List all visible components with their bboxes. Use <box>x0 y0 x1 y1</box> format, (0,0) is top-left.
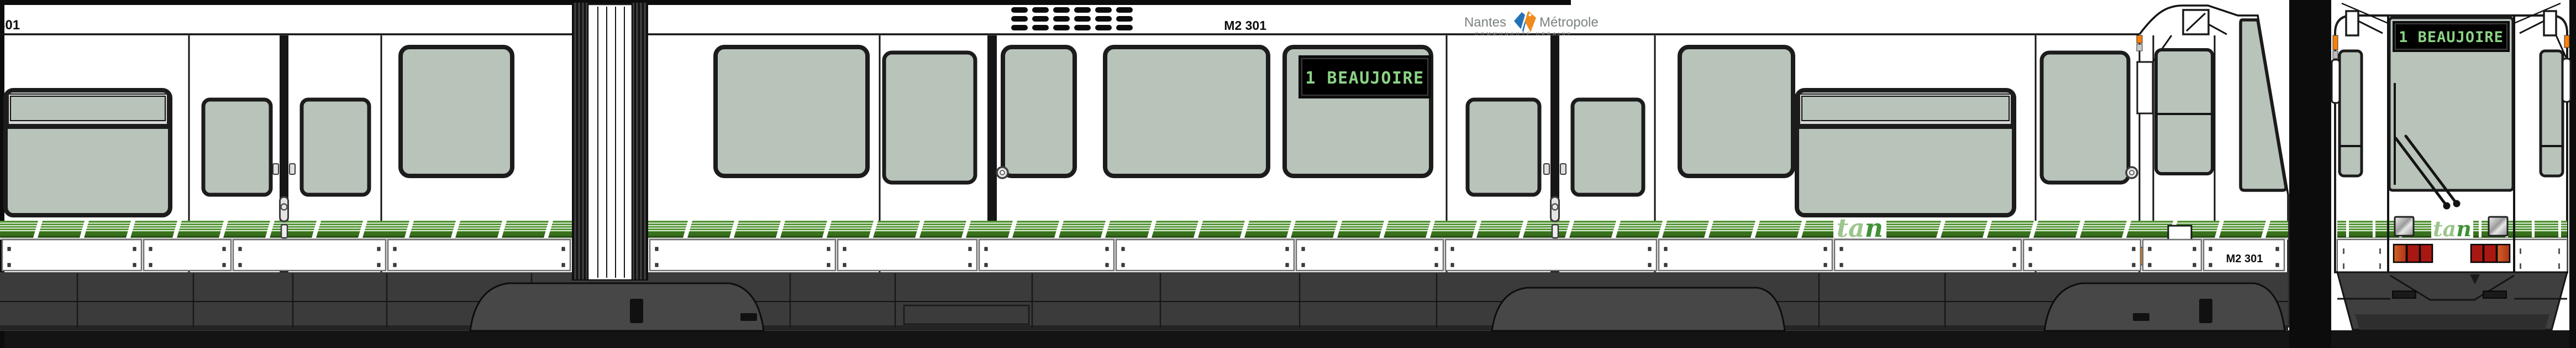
rivet <box>1824 247 1827 251</box>
rivet <box>562 263 565 267</box>
tail-lights-right <box>2471 245 2510 262</box>
roof-conduit-bar <box>0 0 1571 5</box>
tan-logo-front: tan <box>2433 216 2472 241</box>
front-skirt <box>2337 240 2567 272</box>
ground-strip <box>0 330 2576 348</box>
rivet <box>985 247 987 251</box>
roof-vent <box>1053 25 1070 30</box>
rivet <box>2276 247 2279 251</box>
saloon-window <box>1105 47 1268 176</box>
rivet <box>2013 247 2016 251</box>
operator-word1: Nantes <box>1464 15 1506 30</box>
rivet <box>1122 263 1124 267</box>
skirt-panel <box>979 240 1114 271</box>
roof-vent <box>1074 25 1091 30</box>
rivet <box>2013 263 2016 267</box>
rivet <box>149 263 152 267</box>
end-side-window-right <box>2541 51 2563 176</box>
rivet <box>1435 263 1438 267</box>
skirt-panel <box>838 240 977 271</box>
headlight-left <box>2395 217 2414 236</box>
band-gap-line <box>0 230 2288 231</box>
rivet <box>223 247 225 251</box>
marker-orange-right <box>2564 35 2569 48</box>
skirt-panel <box>233 240 386 271</box>
door-leaf-window <box>1573 100 1643 195</box>
operator-subtitle: COMMUNAUTÉ URBAINE <box>1475 31 1573 37</box>
cut-fleet-number: 301 <box>0 18 20 33</box>
bogie-fairing-mid <box>1492 288 1785 331</box>
bogie-slot-1 <box>630 299 643 323</box>
rivet <box>1286 263 1289 267</box>
skirt-panel <box>1296 240 1443 271</box>
rivet <box>1122 247 1124 251</box>
tan-logo-side: tan <box>1837 213 1884 243</box>
end-view: 1 BEAUJOIRE tan <box>2332 3 2570 330</box>
front-destination-text: 1 BEAUJOIRE <box>2399 29 2504 46</box>
tram-drawing-canvas: 1 BEAUJOIRE tan <box>0 0 2576 348</box>
rivet <box>2148 263 2151 267</box>
roof-fleet-number: M2 301 <box>1224 18 1266 33</box>
rivet <box>1664 247 1667 251</box>
tail-lights-left <box>2394 245 2432 262</box>
skirt-number-text: M2 301 <box>2226 253 2263 265</box>
cab-marker-base <box>2137 44 2142 51</box>
rivet <box>2029 247 2032 251</box>
rivet <box>1106 247 1108 251</box>
tram-schematic: 1 BEAUJOIRE tan <box>0 0 2576 348</box>
roof-vent <box>1095 25 1112 30</box>
marker-orange-left <box>2333 35 2338 50</box>
rivet <box>2209 263 2212 267</box>
rivet <box>1435 247 1438 251</box>
saloon-window <box>1680 47 1793 176</box>
rivet <box>223 263 225 267</box>
single-door-window <box>2042 53 2128 183</box>
mirror-box-left <box>2346 11 2358 35</box>
rivet <box>969 263 971 267</box>
band-edge <box>0 236 2288 238</box>
rivet <box>2132 263 2135 267</box>
rivet <box>1106 263 1108 267</box>
roof-vent <box>1116 25 1133 30</box>
bogie-slot-3 <box>2199 299 2212 323</box>
right-edge-strip <box>2569 0 2576 348</box>
roof-vent <box>1074 16 1091 22</box>
rivet <box>8 247 10 251</box>
rivet <box>1451 247 1454 251</box>
skirt-panel <box>2143 240 2201 271</box>
rivet <box>1286 247 1289 251</box>
skirt-panel <box>144 240 231 271</box>
skirt-panel <box>2023 240 2141 271</box>
rivet <box>2193 247 2196 251</box>
band-slash-vertical <box>2373 221 2375 237</box>
rivet <box>149 247 152 251</box>
roof-vent <box>1011 25 1028 30</box>
vent-window-slider <box>1802 96 2009 121</box>
single-door-window <box>884 53 975 183</box>
mirror-arm-right <box>2563 59 2570 102</box>
side-band <box>0 221 2288 240</box>
mirror-arm-left <box>2332 60 2340 103</box>
door3-latch-right <box>1560 164 1566 174</box>
rivet <box>8 263 10 267</box>
rivet <box>2029 263 2032 267</box>
door1-latch-right <box>290 164 295 174</box>
roof-vent <box>1116 7 1133 13</box>
roof-vent <box>1032 25 1049 30</box>
band-slash-vertical <box>2479 221 2482 237</box>
vent-window-divider <box>8 124 168 129</box>
roof-vent <box>1095 7 1112 13</box>
door-leaf-window <box>1468 100 1539 195</box>
rivet <box>655 263 658 267</box>
roof-vent <box>1116 16 1133 22</box>
roof-vent <box>1095 16 1112 22</box>
bogie-fairing-cab <box>2044 283 2285 331</box>
view-separator <box>2289 0 2331 348</box>
gangway-panel <box>588 4 632 280</box>
bogie-slot-4 <box>2133 313 2149 321</box>
bogie-fairing-center <box>470 283 764 331</box>
skirt-panel <box>2 240 141 271</box>
front-apron <box>2337 272 2567 330</box>
roof-vent <box>1053 7 1070 13</box>
skirt-panel <box>1116 240 1294 271</box>
end-side-window-left <box>2340 51 2362 176</box>
roof-vent <box>1074 7 1091 13</box>
door3-lock <box>1552 225 1558 238</box>
rivet <box>1648 247 1651 251</box>
rivet <box>1302 263 1305 267</box>
headlight-right <box>2489 217 2507 236</box>
bellows-right <box>632 2 648 280</box>
cab-door-window <box>2156 50 2212 174</box>
rivet <box>1451 263 1454 267</box>
door2-round-handle-core <box>1000 170 1005 175</box>
rivet <box>239 263 241 267</box>
side-skirt <box>2 240 2284 271</box>
door3-latch-left <box>1544 164 1549 174</box>
rivet <box>1840 247 1843 251</box>
door1-lock <box>281 225 287 238</box>
bellows-left <box>572 2 588 280</box>
rivet <box>377 263 380 267</box>
vent-window-divider <box>1799 124 2012 129</box>
rivet <box>843 247 846 251</box>
articulation <box>572 1 648 280</box>
rivet <box>2148 247 2151 251</box>
rivet <box>1824 263 1827 267</box>
door4-round-handle-core <box>2130 170 2134 175</box>
vent-window-slider <box>10 96 165 121</box>
skirt-panel <box>1834 240 2021 271</box>
band-gap-line <box>0 228 2288 229</box>
cab-mirror-body <box>2137 62 2153 113</box>
apron-slot-left <box>2393 291 2416 298</box>
saloon-window <box>1003 47 1075 176</box>
rivet <box>2132 247 2135 251</box>
rivet <box>985 263 987 267</box>
rivet <box>843 263 846 267</box>
door-leaf-window <box>302 100 369 195</box>
rivet <box>133 263 136 267</box>
band-slash-vertical <box>2532 221 2535 237</box>
rivet <box>393 263 396 267</box>
rivet <box>133 247 136 251</box>
bogie-slot-2 <box>740 313 757 321</box>
door2-stile <box>987 35 997 240</box>
skirt-panel <box>388 240 570 271</box>
underbody <box>0 272 2288 331</box>
rivet <box>393 247 396 251</box>
saloon-window <box>716 47 868 176</box>
side-destination-display: 1 BEAUJOIRE <box>1298 55 1431 98</box>
operator-word2: Métropole <box>1539 15 1599 30</box>
mirror-box-right <box>2544 11 2556 35</box>
rivet <box>562 247 565 251</box>
band-gap-line <box>0 225 2288 226</box>
skirt-panel <box>650 240 835 271</box>
band-slash-vertical <box>2346 221 2349 237</box>
front-destination-display: 1 BEAUJOIRE <box>2393 21 2510 52</box>
skirt-panel <box>1445 240 1657 271</box>
rivet <box>1302 247 1305 251</box>
cab-marker-light <box>2137 35 2142 43</box>
rivet <box>2276 263 2279 267</box>
rivet <box>1664 263 1667 267</box>
rivet <box>2209 247 2212 251</box>
side-destination-text: 1 BEAUJOIRE <box>1305 69 1424 88</box>
rivet <box>1648 263 1651 267</box>
rivet <box>969 247 971 251</box>
door-leaf-window <box>203 100 271 195</box>
apron-slot-right <box>2483 291 2506 298</box>
roof-vent <box>1011 16 1028 22</box>
rivet <box>655 247 658 251</box>
roof-vent <box>1053 16 1070 22</box>
rivet <box>827 247 830 251</box>
rivet <box>239 247 241 251</box>
skirt-panel <box>1659 240 1832 271</box>
roof-vent <box>1011 7 1028 13</box>
rivet <box>2193 263 2196 267</box>
rivet <box>1840 263 1843 267</box>
saloon-window <box>401 47 512 176</box>
rivet <box>827 263 830 267</box>
band-slash-vertical <box>2558 221 2561 237</box>
roof-vent <box>1032 7 1049 13</box>
rivet <box>377 247 380 251</box>
roof-vent <box>1032 16 1049 22</box>
door1-latch-left <box>273 164 278 174</box>
